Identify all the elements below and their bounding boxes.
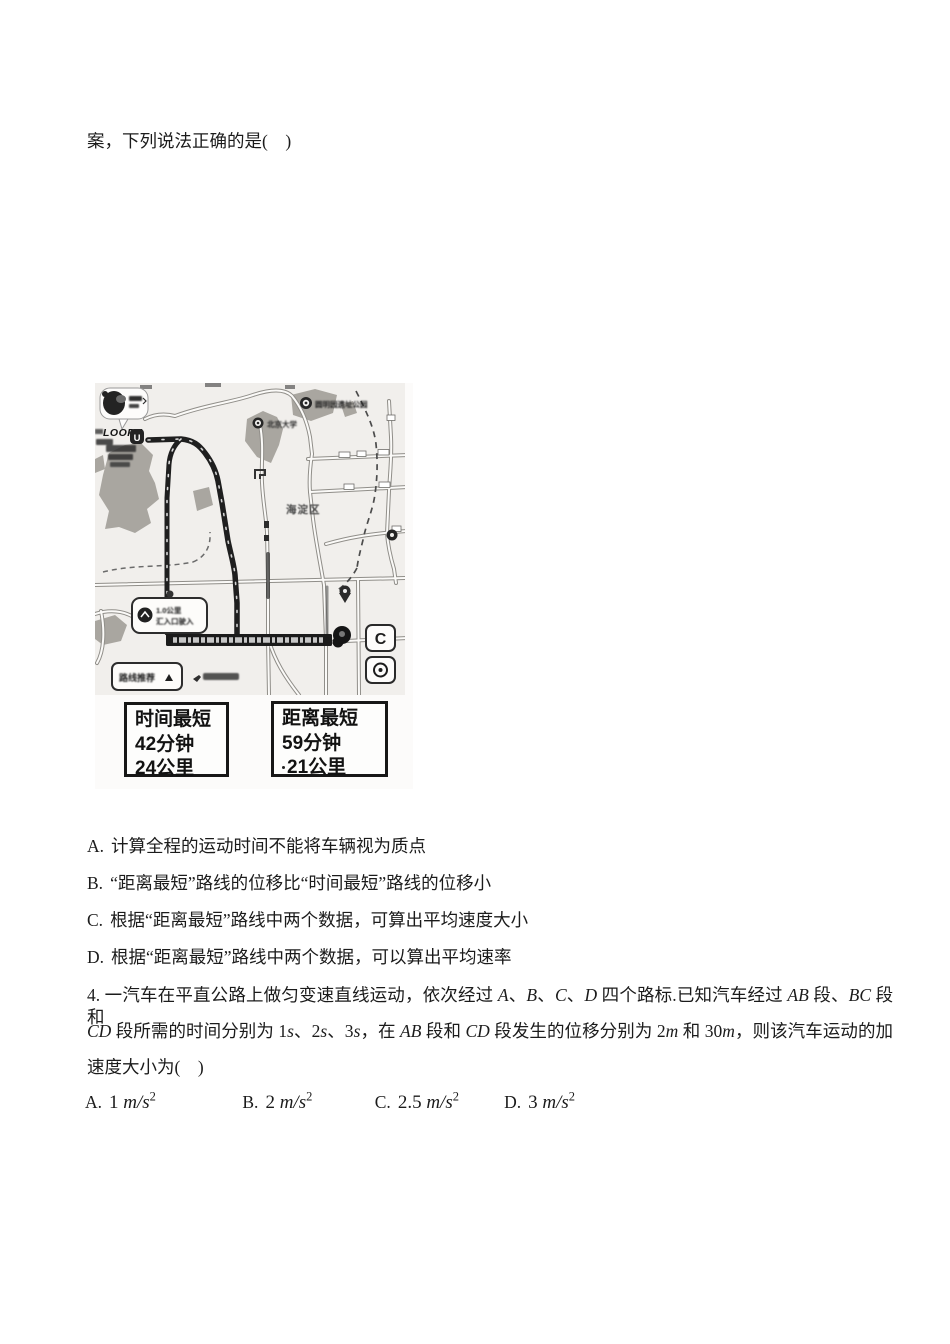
card-title: 距离最短 <box>282 707 385 732</box>
q4-option-a: A.1 m/s2 <box>85 1090 238 1114</box>
formula: 2 m/s2 <box>265 1092 312 1113</box>
maneuver-icon <box>138 608 153 623</box>
q3-option-c: C.根据“距离最短”路线中两个数据，可算出平均速度大小 <box>87 909 528 931</box>
formula: 1 m/s2 <box>109 1092 156 1113</box>
option-label: B. <box>87 873 103 893</box>
card-time: 59分钟 <box>282 732 385 757</box>
district-label: 海淀区 <box>286 503 321 516</box>
exam-page: 案，下列说法正确的是( ) <box>0 0 950 1344</box>
locate-button <box>366 657 395 683</box>
option-label: D. <box>87 947 104 967</box>
q4-option-c: C.2.5 m/s2 <box>375 1090 500 1114</box>
formula: 2.5 m/s2 <box>398 1092 459 1113</box>
option-text: 根据“距离最短”路线中两个数据，可算出平均速度大小 <box>110 910 528 930</box>
nav-distance-text: 1.0公里 <box>156 606 182 615</box>
poi-icon <box>300 397 312 409</box>
route-option-pill: 路线推荐 <box>112 663 182 690</box>
option-text: “距离最短”路线的位移比“时间最短”路线的位移小 <box>110 873 491 893</box>
poi-label: 圆明园遗址公园 <box>315 399 368 409</box>
refresh-icon: C <box>375 631 387 648</box>
card-time: 42分钟 <box>135 733 226 758</box>
card-distance: 24公里 <box>135 757 226 782</box>
intro-line: 案，下列说法正确的是( ) <box>87 130 291 152</box>
q4-options-row: A.1 m/s2 B.2 m/s2 C.2.5 m/s2 D.3 m/s2 <box>85 1090 575 1114</box>
q4-option-b: B.2 m/s2 <box>242 1090 370 1114</box>
nav-instruction-bubble: 1.0公里 汇入口驶入 <box>132 598 207 633</box>
navigation-map-figure: 圆明园遗址公园 北京大学 海淀区 <box>95 383 413 789</box>
route-option-text: 路线推荐 <box>119 672 155 683</box>
q4-option-d: D.3 m/s2 <box>504 1090 575 1114</box>
scan-artifact-dot <box>282 766 285 769</box>
refresh-button: C <box>366 625 395 651</box>
route-card-distance-shortest: 距离最短 59分钟 21公里 <box>271 701 388 777</box>
card-distance: 21公里 <box>282 756 385 781</box>
q3-option-a: A.计算全程的运动时间不能将车辆视为质点 <box>87 835 426 857</box>
q4-stem-line-2: CD 段所需的时间分别为 1s、2s、3s，在 AB 段和 CD 段发生的位移分… <box>87 1020 893 1042</box>
option-label: A. <box>87 836 104 856</box>
option-label: C. <box>87 910 103 930</box>
card-title: 时间最短 <box>135 708 226 733</box>
svg-text:U: U <box>134 433 141 444</box>
poi-icon <box>253 418 264 429</box>
q3-option-b: B.“距离最短”路线的位移比“时间最短”路线的位移小 <box>87 872 491 894</box>
route-start-marker: U <box>130 429 144 444</box>
navigation-map-image: 圆明园遗址公园 北京大学 海淀区 <box>95 383 405 695</box>
q4-stem-line-3: 速度大小为( ) <box>87 1056 893 1078</box>
q3-option-d: D.根据“距离最短”路线中两个数据，可以算出平均速率 <box>87 946 512 968</box>
option-text: 计算全程的运动时间不能将车辆视为质点 <box>111 836 426 856</box>
poi-dot-icon <box>387 530 398 541</box>
formula: 3 m/s2 <box>528 1092 575 1113</box>
option-text: 根据“距离最短”路线中两个数据，可以算出平均速率 <box>111 947 512 967</box>
nav-action-text: 汇入口驶入 <box>156 616 194 626</box>
poi-label: 北京大学 <box>267 419 297 429</box>
route-card-time-shortest: 时间最短 42分钟 24公里 <box>124 702 229 777</box>
